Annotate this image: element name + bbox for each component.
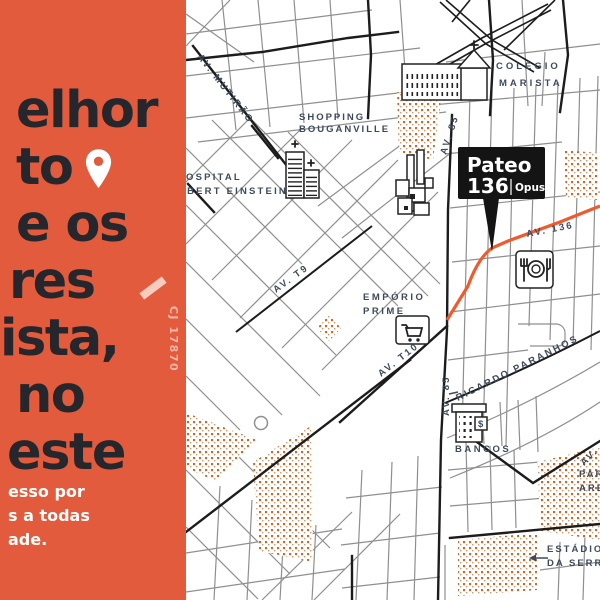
label-emporio-1: EMPÓRIO <box>363 291 425 303</box>
sub-copy-line: s a todas <box>8 504 90 528</box>
restaurant-icon <box>516 251 553 288</box>
headline-line: res <box>9 253 95 310</box>
dollar-sign: $ <box>478 419 484 430</box>
label-hospital-1: HOSPITAL <box>186 172 242 183</box>
label-estadio-1: ESTÁDIO <box>547 544 600 555</box>
label-parque-1: PARQUE <box>579 469 600 480</box>
headline-line: e os <box>16 196 128 253</box>
label-estadio-2: DA SERRINHA <box>547 558 600 569</box>
label-av85-mid: AV. 85 <box>441 375 452 416</box>
label-shopping-1: SHOPPING <box>299 112 365 123</box>
headline-line: ista, <box>0 310 119 367</box>
bank-icon: $ <box>452 404 487 442</box>
left-panel: elhor to e os res ista, no este CJ 17870… <box>0 0 186 600</box>
map: $ Pateo 136 Opus. AV. MUTIRÃO SHOPPING B… <box>186 0 600 600</box>
marker-brand: Opus. <box>515 182 549 194</box>
vertical-code: CJ 17870 <box>166 303 180 375</box>
sub-copy: esso por s a todas ade. <box>8 480 90 552</box>
sub-copy-line: ade. <box>8 528 90 552</box>
headline-line: elhor <box>16 82 157 139</box>
label-colegio-1: COLÉGIO <box>496 61 561 72</box>
headline-line: no <box>16 367 84 424</box>
label-bancos: BANCOS <box>455 444 511 455</box>
location-pin-icon <box>85 148 112 190</box>
sub-copy-line: esso por <box>8 480 90 504</box>
label-hospital-2: ALBERT EINSTEIN <box>186 186 288 197</box>
promo-map-graphic: elhor to e os res ista, no este CJ 17870… <box>0 0 600 600</box>
headline-line: to <box>16 139 72 196</box>
label-colegio-2: MARISTA <box>499 78 563 89</box>
headline: elhor to e os res ista, no este <box>16 82 157 481</box>
emporio-prime-icon <box>396 316 429 344</box>
label-emporio-2: PRIME <box>363 306 406 317</box>
label-parque-2: AREIÃO <box>579 483 600 494</box>
roundabout <box>255 417 268 430</box>
marker-number: 136 <box>467 174 509 198</box>
headline-line: este <box>7 424 125 481</box>
label-shopping-2: BOUGANVILLE <box>299 124 390 135</box>
